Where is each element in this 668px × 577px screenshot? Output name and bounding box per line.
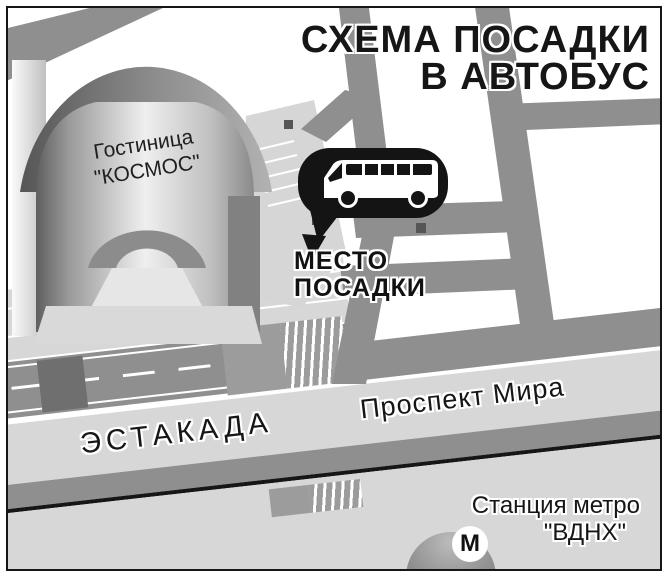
road-east-branch (500, 98, 662, 131)
metro-station-line1: Станция метро (430, 492, 640, 519)
map-canvas: ЭСТАКАДА Проспект Мира (6, 6, 662, 571)
title-line2: В АВТОБУС (250, 59, 650, 96)
hotel-building (12, 60, 272, 344)
bus-boarding-scheme: ЭСТАКАДА Проспект Мира (0, 0, 668, 577)
title-line1: СХЕМА ПОСАДКИ (250, 22, 650, 59)
metro-m-icon: М (452, 526, 488, 562)
hotel-base (34, 306, 262, 344)
map-border: ЭСТАКАДА Проспект Мира (6, 6, 662, 571)
boarding-point-label: МЕСТО ПОСАДКИ (294, 248, 426, 302)
page-title: СХЕМА ПОСАДКИ В АВТОБУС (250, 22, 650, 96)
boarding-point-line2: ПОСАДКИ (294, 275, 426, 302)
boarding-point-line1: МЕСТО (294, 248, 426, 275)
